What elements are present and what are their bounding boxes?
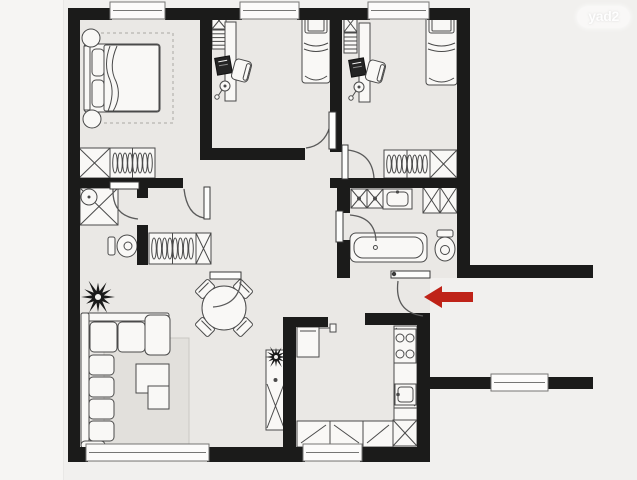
wall-segment	[137, 225, 148, 265]
wall-segment	[200, 148, 305, 160]
single-bed	[426, 13, 457, 85]
window	[240, 2, 299, 19]
wall-segment	[330, 178, 470, 188]
wall-segment	[457, 8, 470, 278]
wall-segment	[283, 317, 296, 450]
double-bed	[84, 44, 160, 112]
window	[491, 374, 548, 391]
kitchen-counter	[297, 421, 393, 447]
single-bed	[302, 13, 330, 83]
closet-box	[196, 233, 211, 264]
toilet	[435, 230, 455, 261]
yad2-watermark: yad2	[577, 6, 630, 28]
wall-segment	[417, 313, 430, 462]
closet-box	[79, 148, 110, 178]
closet-box	[430, 150, 457, 178]
yad2-logo-text: yad2	[588, 8, 619, 24]
floor-plan: yad2	[0, 0, 637, 480]
wall-segment	[457, 265, 593, 278]
wall-segment	[68, 447, 88, 462]
bathtub	[350, 233, 427, 262]
bathroom-cabinet	[440, 187, 457, 213]
wall-segment	[430, 377, 493, 389]
bathroom-sink	[383, 189, 412, 209]
window	[86, 444, 209, 461]
bookshelf	[344, 33, 357, 53]
computer-monitor	[349, 58, 367, 77]
window	[368, 2, 429, 19]
kitchen-sink	[395, 384, 416, 405]
bathroom-cabinet	[423, 187, 440, 213]
window	[303, 444, 362, 461]
computer-monitor	[215, 56, 233, 75]
wall-segment	[546, 377, 593, 389]
floor-plan-drawing	[0, 0, 637, 480]
washing-machines	[351, 189, 383, 208]
hanging-closet	[384, 150, 430, 178]
shower	[80, 188, 118, 225]
bookshelf	[212, 30, 226, 49]
stove	[394, 329, 416, 363]
nightstand	[83, 110, 101, 128]
wall-segment	[337, 188, 350, 213]
wall-segment	[337, 240, 350, 278]
entrance-arrow	[424, 286, 473, 308]
kitchen-cabinet	[393, 420, 417, 446]
window	[110, 2, 165, 19]
toilet	[108, 235, 137, 257]
hanging-closet	[110, 148, 155, 178]
wall-segment	[68, 8, 80, 462]
nightstand	[82, 29, 100, 47]
hanging-closet	[149, 233, 196, 264]
dining-table	[195, 279, 254, 338]
wall-segment	[200, 8, 212, 152]
